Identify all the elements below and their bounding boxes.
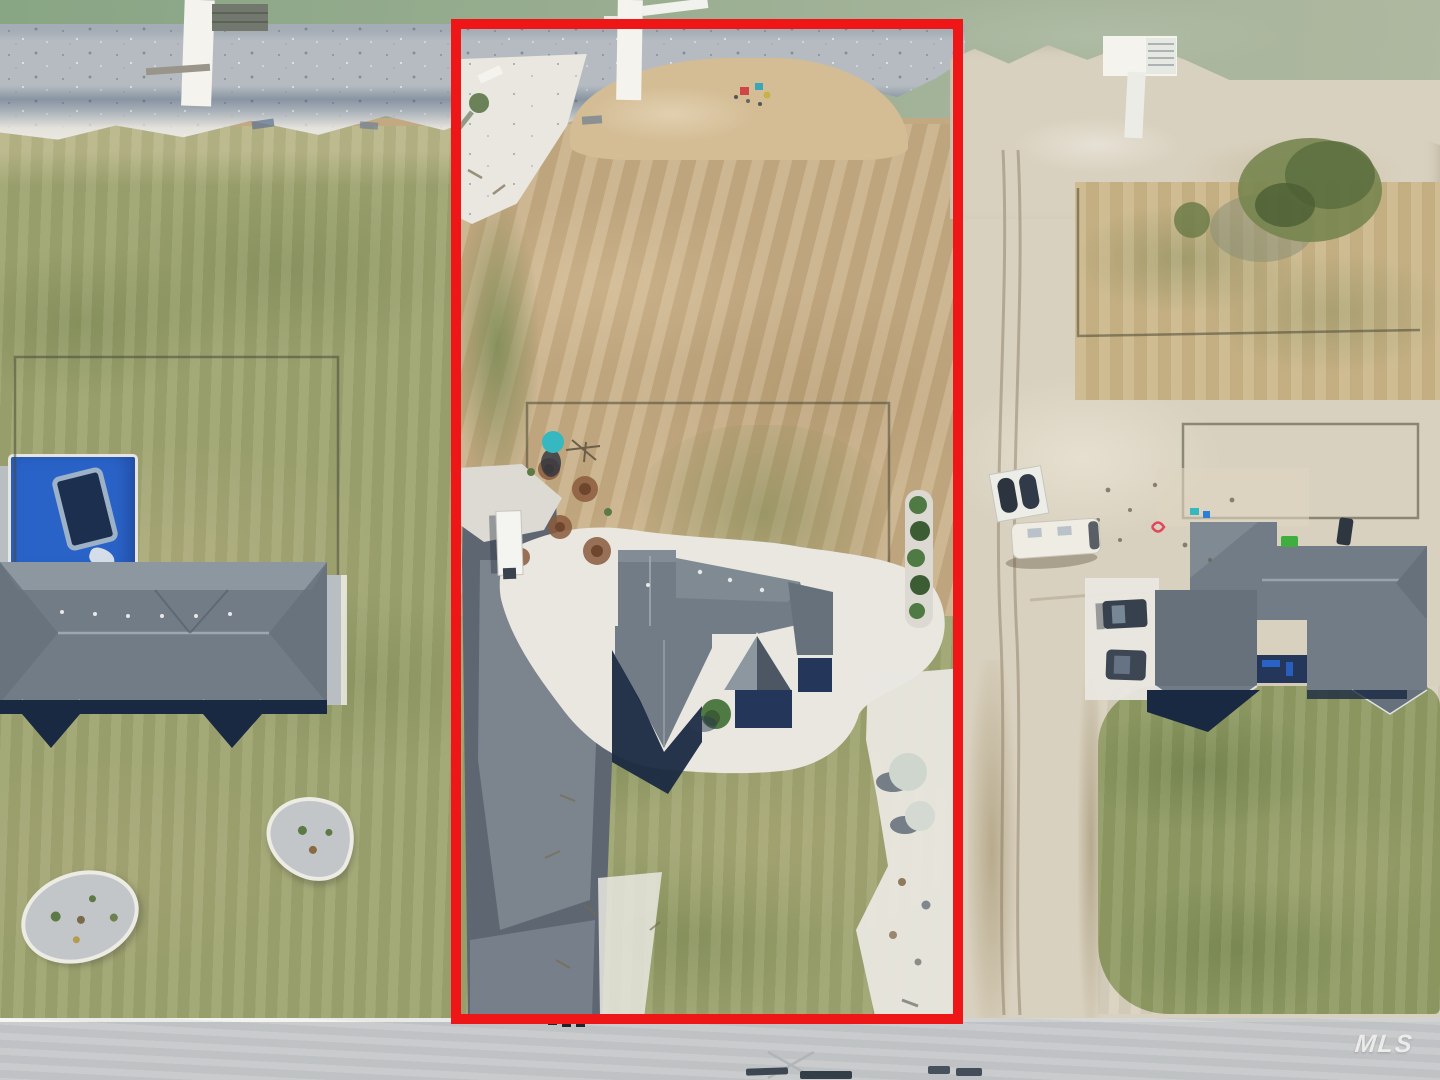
house-shadow <box>0 700 327 748</box>
grill <box>1336 517 1354 546</box>
property-boundary-outline <box>451 19 963 1024</box>
big-tree <box>1174 138 1382 262</box>
mls-watermark: MLS <box>1354 1030 1416 1059</box>
left-yard-fence <box>15 357 338 585</box>
rv-trailer <box>1003 518 1102 572</box>
left-house-roof <box>0 562 347 748</box>
suv <box>1105 649 1146 680</box>
aerial-photo: MLS <box>0 0 1440 1080</box>
right-dock <box>1103 36 1177 138</box>
left-dock <box>146 0 268 106</box>
right-house <box>1085 468 1427 732</box>
right-driveway-pad <box>1085 578 1159 700</box>
small-tree <box>1174 202 1210 238</box>
blue-accent <box>1262 660 1280 667</box>
pickup-truck <box>1095 599 1147 630</box>
road-markings <box>548 1020 982 1079</box>
jetski-trailer <box>989 466 1049 522</box>
green-mat <box>1281 536 1298 547</box>
house-shadow <box>1147 690 1260 732</box>
